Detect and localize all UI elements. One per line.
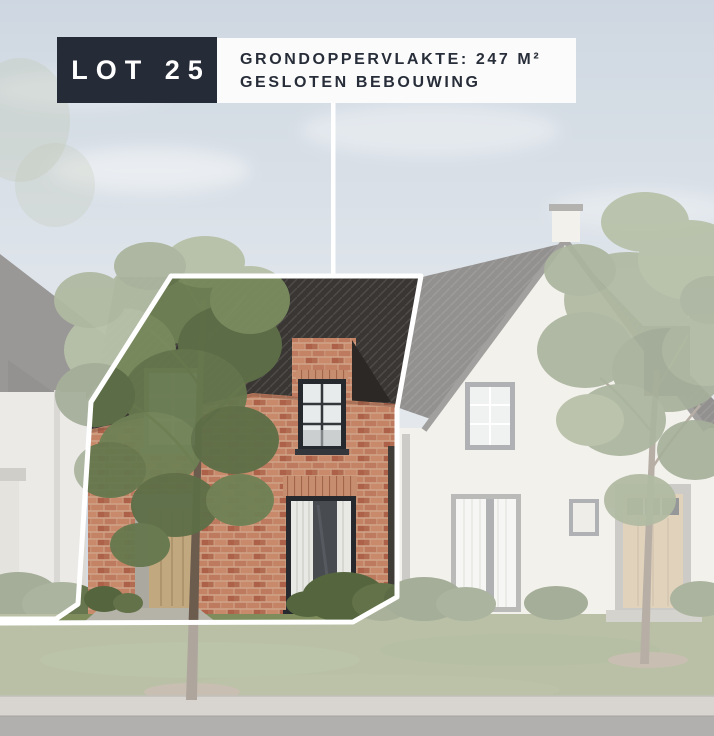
- info-panel: GRONDOPPERVLAKTE: 247 M² GESLOTEN BEBOUW…: [217, 38, 576, 103]
- lot-rendering: LOT 25 GRONDOPPERVLAKTE: 247 M² GESLOTEN…: [0, 0, 714, 736]
- scene: [0, 0, 714, 736]
- lot-badge: LOT 25: [57, 37, 217, 103]
- lot-label: LOT 25: [63, 55, 211, 86]
- fade-overlay: [0, 0, 714, 736]
- type-line: GESLOTEN BEBOUWING: [240, 71, 576, 94]
- area-line: GRONDOPPERVLAKTE: 247 M²: [240, 48, 576, 71]
- pointer-line: [331, 100, 336, 276]
